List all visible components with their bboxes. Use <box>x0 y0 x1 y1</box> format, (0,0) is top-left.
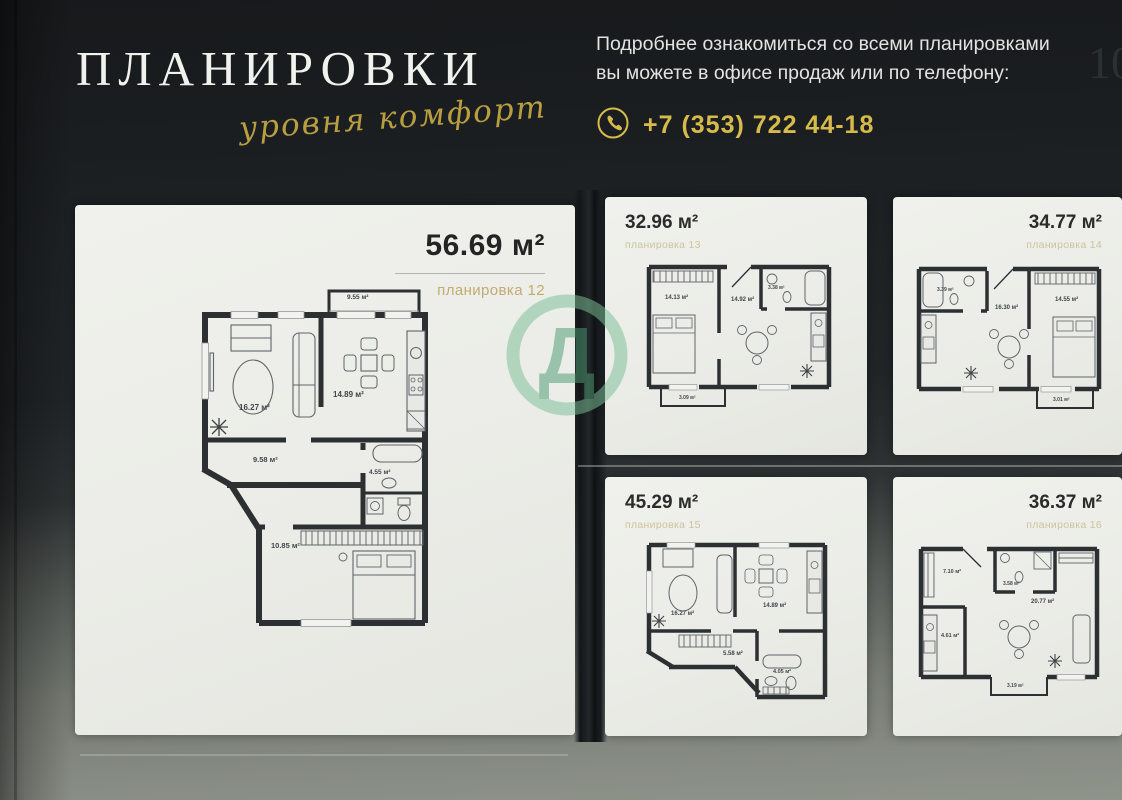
room-label-bath: 3.38 м² <box>768 285 784 291</box>
featured-plan-card: 56.69 м² планировка 12 <box>75 205 575 735</box>
floor-plan-svg <box>909 259 1109 419</box>
plan-card-15-header: 45.29 м² планировка 15 <box>625 492 701 531</box>
area-label: 36.37 м² <box>1026 492 1102 514</box>
contact-info-text: Подробнее ознакомиться со всеми планиров… <box>596 30 1076 89</box>
reflection-line-bottom <box>80 754 568 756</box>
room-label-kitchen: 14.89 м² <box>763 603 786 609</box>
page-left-shadow <box>0 0 72 800</box>
floor-plan-13: 14.13 м² 14.92 м² 3.38 м² 3.09 м² <box>639 257 839 417</box>
plan-name-label: планировка 14 <box>1026 239 1102 251</box>
floor-plan-svg <box>201 285 429 645</box>
plan-card-13: 32.96 м² планировка 13 <box>605 197 867 455</box>
room-label-bath: 3.39 м² <box>937 287 953 293</box>
page-number: 10 <box>1088 36 1122 89</box>
area-label: 34.77 м² <box>1026 212 1102 234</box>
room-label-living: 20.77 м² <box>1031 599 1054 605</box>
room-label-balcony: 3.09 м² <box>679 395 695 401</box>
area-label: 45.29 м² <box>625 492 701 514</box>
phone-number: +7 (353) 722 44-18 <box>643 111 874 140</box>
area-label: 56.69 м² <box>395 229 545 263</box>
watermark-letter: Д <box>539 311 596 400</box>
contact-info-line2: вы можете в офисе продаж или по телефону… <box>596 59 1076 88</box>
room-label-hall: 5.58 м² <box>723 651 743 657</box>
room-label-living: 16.27 м² <box>671 611 694 617</box>
plan-name-label: планировка 13 <box>625 239 701 251</box>
page-tagline: уровня комфорт <box>227 89 559 148</box>
phone-icon <box>596 106 630 145</box>
floor-plan-svg <box>639 257 839 417</box>
room-label-hall: 7.10 м² <box>943 569 961 575</box>
room-label-bedroom: 10.85 м² <box>271 541 300 550</box>
area-label: 32.96 м² <box>625 212 701 234</box>
plan-name-label: планировка 15 <box>625 519 701 531</box>
floor-plan-16: 7.10 м² 3.58 м² 20.77 м² 4.61 м² 3.19 м² <box>907 537 1107 707</box>
plan-card-15: 45.29 м² планировка 15 <box>605 477 867 736</box>
room-label-kitchen: 14.89 м² <box>333 390 364 399</box>
contact-info-line1: Подробнее ознакомиться со всеми планиров… <box>596 30 1076 59</box>
floor-plan-svg <box>639 535 839 705</box>
plan-card-14-header: 34.77 м² планировка 14 <box>1026 212 1102 251</box>
page-title: ПЛАНИРОВКИ <box>76 40 485 97</box>
plan-card-16-header: 36.37 м² планировка 16 <box>1026 492 1102 531</box>
reflection-line-right <box>578 465 1122 467</box>
room-label-bedroom: 14.55 м² <box>1055 297 1078 303</box>
room-label-living: 16.30 м² <box>995 305 1018 311</box>
floor-plan-svg <box>907 537 1107 707</box>
floor-plan-14: 3.39 м² 16.30 м² 14.55 м² 3.01 м² <box>909 259 1109 419</box>
phone-block: +7 (353) 722 44-18 <box>596 106 874 145</box>
room-label-living: 14.92 м² <box>731 297 754 303</box>
plan-card-14: 34.77 м² планировка 14 <box>893 197 1122 455</box>
room-label-balcony: 3.19 м² <box>1007 683 1023 689</box>
room-label-living: 16.27 м² <box>239 403 270 412</box>
page-edge-line <box>14 0 17 800</box>
room-label-bath: 4.55 м² <box>369 469 390 476</box>
room-label-hall: 9.58 м² <box>253 455 278 464</box>
plan-card-16: 36.37 м² планировка 16 <box>893 477 1122 736</box>
room-label-bath: 3.58 м² <box>1003 581 1019 587</box>
divider-rule <box>395 273 545 274</box>
room-label-kitchen: 4.61 м² <box>941 633 959 639</box>
brochure-page: ПЛАНИРОВКИ уровня комфорт Подробнее озна… <box>0 0 1122 800</box>
plan-name-label: планировка 16 <box>1026 519 1102 531</box>
room-label-balcony: 9.55 м² <box>347 294 368 301</box>
room-label-balcony: 3.01 м² <box>1053 397 1069 403</box>
floor-plan-12: 9.55 м² 16.27 м² 14.89 м² 9.58 м² 4.55 м… <box>201 285 429 645</box>
plan-card-13-header: 32.96 м² планировка 13 <box>625 212 701 251</box>
floor-plan-15: 16.27 м² 14.89 м² 5.58 м² 4.05 м² <box>639 535 839 705</box>
room-label-bath: 4.05 м² <box>773 669 791 675</box>
developer-watermark-logo: Д <box>503 291 631 419</box>
room-label-bedroom: 14.13 м² <box>665 295 688 301</box>
